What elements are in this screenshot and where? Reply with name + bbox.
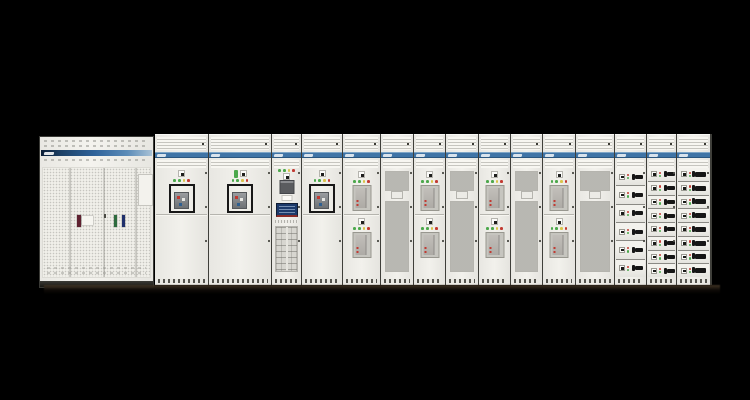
louver-vent <box>345 137 378 150</box>
drawer-meter <box>619 265 625 271</box>
bottom-vent <box>514 279 539 283</box>
drawer-meter <box>619 247 625 253</box>
terminal-strip <box>275 220 298 223</box>
indicator-led <box>435 180 438 183</box>
brand-banner <box>272 152 301 158</box>
photo-stage <box>0 0 750 400</box>
louver-vent <box>578 137 612 150</box>
brand-banner <box>155 152 208 158</box>
indicator-row <box>273 173 300 180</box>
withdrawable-drawer <box>616 241 645 259</box>
indicator-led <box>551 227 554 230</box>
drawer-led <box>659 175 661 177</box>
withdrawable-drawer <box>678 264 709 277</box>
drawer-led <box>627 211 629 213</box>
indicator-led <box>236 179 239 182</box>
white-label <box>82 216 93 225</box>
left-distribution-cabinet <box>40 137 153 287</box>
section-mesh-2 <box>446 134 478 285</box>
drawer-led <box>659 189 661 191</box>
bottom-vent <box>650 279 673 283</box>
indicator-row <box>544 171 574 178</box>
louver-vent <box>304 160 340 168</box>
drawer-led-column <box>659 227 661 232</box>
section-acb-1 <box>155 134 208 285</box>
section-mesh-3 <box>511 134 542 285</box>
drawer-handle <box>635 193 643 197</box>
indicator-led <box>278 169 281 172</box>
louver-vent <box>274 160 299 168</box>
mccb-breaker <box>352 232 371 258</box>
drawer-led-column <box>659 213 661 218</box>
drawer-meter <box>681 254 687 260</box>
mccb-breaker <box>550 232 569 258</box>
screw-dot <box>569 143 571 145</box>
louver-vent <box>448 137 476 150</box>
brand-banner <box>677 152 710 158</box>
section-content <box>512 168 541 277</box>
indicator-led <box>363 227 366 230</box>
mccb-breaker <box>420 185 439 211</box>
indicator-led <box>358 227 361 230</box>
drawer-led <box>689 172 691 174</box>
indicator-led-row <box>344 180 379 183</box>
section-content <box>577 168 613 277</box>
drawer-led <box>689 244 691 246</box>
indicator-led <box>323 179 326 182</box>
indicator-led-row <box>344 227 379 230</box>
indicator-led <box>565 227 568 230</box>
louver-vent <box>513 160 540 168</box>
brand-banner <box>343 152 380 158</box>
side-panel-frame <box>138 174 153 206</box>
hinge-screws <box>410 171 412 273</box>
hinge-screws <box>707 171 709 273</box>
mccb-breaker <box>420 232 439 258</box>
drawer-led <box>689 185 691 187</box>
indicator-led <box>496 227 499 230</box>
indicator-led-row <box>210 179 270 182</box>
louver-vent <box>513 137 540 150</box>
indicator-led <box>232 179 235 182</box>
drawer-handle <box>635 211 643 215</box>
drawer-handle <box>695 213 706 218</box>
drawer-led <box>689 254 691 256</box>
brand-logo <box>416 154 426 157</box>
drawer-meter <box>681 185 687 191</box>
mccb-breaker <box>485 232 504 258</box>
withdrawable-drawer <box>648 264 675 277</box>
meter-indicator <box>240 170 247 177</box>
indicator-led <box>173 179 176 182</box>
drawer-handle <box>635 266 643 270</box>
indicator-led <box>178 179 181 182</box>
screw-dot <box>336 143 338 145</box>
brand-banner <box>543 152 575 158</box>
drawer-led-column <box>659 240 661 245</box>
drawer-led <box>659 172 661 174</box>
drawer-led <box>689 216 691 218</box>
drawer-handle <box>695 227 706 232</box>
screw-dot <box>536 143 538 145</box>
bottom-vent <box>346 279 377 283</box>
hinge-screws <box>539 171 541 273</box>
air-circuit-breaker <box>227 184 253 213</box>
device-label <box>281 195 292 201</box>
compartment-divider <box>480 214 509 215</box>
drawer-led <box>689 202 691 204</box>
section-acb-3 <box>302 134 342 285</box>
drawer-led-column <box>689 199 691 204</box>
brand-logo <box>545 154 555 157</box>
brand-banner <box>576 152 614 158</box>
drawer-led <box>659 271 661 273</box>
indicator-led-row <box>480 227 509 230</box>
section-mccb-1 <box>343 134 380 285</box>
hinge-screws <box>298 171 300 273</box>
bottom-vent <box>618 279 643 283</box>
indicator-led <box>435 227 438 230</box>
brand-logo <box>304 154 314 157</box>
drawer-led <box>659 230 661 232</box>
drawer-led <box>659 216 661 218</box>
protection-relay <box>280 181 293 193</box>
drawer-meter <box>619 229 625 235</box>
indicator-row <box>344 218 379 225</box>
drawer-meter <box>651 226 657 232</box>
section-content <box>480 168 509 277</box>
section-drawers-2 <box>647 134 676 285</box>
brand-banner <box>615 152 646 158</box>
drawer-led-column <box>659 199 661 204</box>
withdrawable-drawer <box>648 237 675 251</box>
indicator-led <box>283 169 286 172</box>
louver-vent <box>679 160 708 168</box>
screw-dot <box>640 143 642 145</box>
louver-vent <box>545 160 573 168</box>
drawer-led-column <box>659 268 661 273</box>
withdrawable-drawer <box>648 209 675 223</box>
indicator-row <box>544 218 574 225</box>
indicator-led <box>358 180 361 183</box>
compartment-divider <box>544 214 574 215</box>
mesh-vent-panel <box>385 201 409 272</box>
brand-logo <box>448 154 458 157</box>
drawer-led <box>689 271 691 273</box>
brand-banner <box>414 152 445 158</box>
panel-label <box>391 191 403 199</box>
brand-logo <box>383 154 393 157</box>
bottom-vent <box>417 279 442 283</box>
screw-dot <box>439 143 441 145</box>
drawer-led-column <box>689 268 691 273</box>
drawer-handle <box>695 186 706 191</box>
door-handle <box>104 214 106 218</box>
panel-label <box>589 191 601 199</box>
mesh-vent-panel <box>385 171 409 191</box>
withdrawable-drawer <box>616 223 645 241</box>
section-mccb-2 <box>414 134 445 285</box>
indicator-led <box>426 180 429 183</box>
indicator-row <box>480 218 509 225</box>
screw-dot <box>202 143 204 145</box>
drawer-meter <box>651 171 657 177</box>
section-metering-hmi <box>272 134 301 285</box>
louver-vent <box>649 160 674 168</box>
drawer-led <box>659 240 661 242</box>
drawer-led-column <box>627 247 629 252</box>
indicator-led <box>367 180 370 183</box>
drawer-led <box>627 232 629 234</box>
indicator-led-row <box>156 179 207 182</box>
drawer-led <box>689 240 691 242</box>
screw-dot <box>265 143 267 145</box>
meter-indicator <box>556 218 563 225</box>
brand-logo <box>578 154 588 157</box>
indicator-led <box>421 180 424 183</box>
mesh-vent-panel <box>515 171 538 191</box>
indicator-led <box>367 227 370 230</box>
drawer-led <box>627 229 629 231</box>
drawer-led <box>689 227 691 229</box>
indicator-led-row <box>480 180 509 183</box>
indicator-led <box>246 179 249 182</box>
indicator-led <box>353 180 356 183</box>
louver-vent <box>304 137 340 150</box>
indicator-led <box>560 227 563 230</box>
drawer-led <box>627 269 629 271</box>
withdrawable-drawer <box>678 223 709 237</box>
withdrawable-drawer <box>678 251 709 265</box>
mesh-vent-panel <box>450 201 474 272</box>
louver-vent <box>481 160 508 168</box>
drawer-meter <box>651 240 657 246</box>
drawer-led <box>659 244 661 246</box>
louver-vent <box>545 137 573 150</box>
section-content <box>678 168 709 277</box>
indicator-led <box>491 227 494 230</box>
bottom-vent <box>449 279 475 283</box>
indicator-led <box>486 180 489 183</box>
withdrawable-drawer <box>616 186 645 204</box>
indicator-led <box>421 227 424 230</box>
drawer-led <box>659 199 661 201</box>
drawer-led-column <box>659 254 661 259</box>
indicator-led <box>288 169 291 172</box>
drawer-meter <box>619 192 625 198</box>
drawer-handle <box>695 241 706 246</box>
section-content <box>156 168 207 277</box>
vent-dash-row <box>44 140 149 142</box>
indicator-led-row <box>544 227 574 230</box>
drawer-led <box>689 213 691 215</box>
brand-logo <box>274 154 284 157</box>
drawer-meter <box>651 185 657 191</box>
drawer-stack <box>678 168 709 277</box>
section-acb-2 <box>209 134 271 285</box>
air-circuit-breaker <box>309 184 335 213</box>
meter-indicator <box>319 170 326 177</box>
indicator-row <box>156 170 207 177</box>
compartment-divider <box>344 214 379 215</box>
drawer-led-column <box>689 227 691 232</box>
indicator-led <box>555 227 558 230</box>
indicator-row <box>210 170 270 178</box>
vent-dash-row <box>44 145 149 147</box>
bottom-vent <box>579 279 611 283</box>
bottom-vent <box>158 279 205 283</box>
meter-indicator <box>491 218 498 225</box>
drawer-meter <box>651 254 657 260</box>
section-content <box>303 168 341 277</box>
bottom-vent <box>546 279 572 283</box>
withdrawable-drawer <box>648 196 675 210</box>
indicator-led-row <box>544 180 574 183</box>
indicator-row <box>480 171 509 178</box>
drawer-led-column <box>689 240 691 245</box>
brand-banner <box>479 152 510 158</box>
green-label <box>114 215 117 227</box>
drawer-led <box>627 174 629 176</box>
brand-logo <box>157 154 167 157</box>
bottom-vent <box>680 279 707 283</box>
hinge-screws <box>205 171 207 273</box>
indicator-row <box>415 171 444 178</box>
drawer-handle <box>635 248 643 252</box>
drawer-stack <box>616 168 645 277</box>
drawer-led <box>689 189 691 191</box>
bottom-vent <box>275 279 298 283</box>
switchgear-lineup <box>155 134 712 285</box>
indicator-led <box>318 179 321 182</box>
drawer-led-column <box>627 229 629 234</box>
indicator-led-row <box>415 180 444 183</box>
section-mccb-4 <box>543 134 575 285</box>
drawer-meter <box>681 226 687 232</box>
withdrawable-drawer <box>616 205 645 223</box>
hinge-screws <box>673 171 675 273</box>
section-mesh-1 <box>381 134 413 285</box>
door-seam <box>69 168 70 277</box>
section-content <box>544 168 574 277</box>
meter-indicator <box>283 173 290 180</box>
brand-banner <box>511 152 542 158</box>
drawer-led-column <box>689 254 691 259</box>
drawer-meter <box>681 268 687 274</box>
screw-dot <box>670 143 672 145</box>
drawer-led-column <box>689 185 691 190</box>
indicator-led <box>183 179 186 182</box>
screw-dot <box>608 143 610 145</box>
indicator-led <box>314 179 317 182</box>
section-mesh-4 <box>576 134 614 285</box>
brand-banner <box>209 152 271 158</box>
louver-vent <box>617 137 644 150</box>
drawer-led-column <box>689 172 691 177</box>
drawer-led-column <box>659 172 661 177</box>
hinge-screws <box>442 171 444 273</box>
brand-banner <box>647 152 676 158</box>
screw-dot <box>704 143 706 145</box>
louver-vent <box>679 137 708 150</box>
drawer-led <box>627 177 629 179</box>
brand-logo <box>649 154 659 157</box>
indicator-led-row <box>273 169 300 172</box>
louver-vent <box>274 137 299 150</box>
drawer-led <box>627 247 629 249</box>
brand-logo <box>345 154 355 157</box>
bottom-vent <box>212 279 268 283</box>
screw-dot <box>472 143 474 145</box>
brand-logo <box>679 154 689 157</box>
indicator-led <box>363 180 366 183</box>
louver-vent <box>383 160 411 168</box>
indicator-row <box>415 218 444 225</box>
floor-shadow <box>44 285 720 294</box>
mesh-vent-panel <box>450 171 474 191</box>
drawer-meter <box>619 174 625 180</box>
indicator-led <box>187 179 190 182</box>
panel-label <box>456 191 468 199</box>
meter-indicator <box>556 171 563 178</box>
indicator-led <box>565 180 568 183</box>
section-content <box>273 168 300 277</box>
louver-vent <box>481 137 508 150</box>
withdrawable-drawer <box>678 196 709 210</box>
drawer-led <box>689 175 691 177</box>
louver-vent <box>416 137 443 150</box>
drawer-led <box>689 257 691 259</box>
mesh-vent-panel <box>515 201 538 272</box>
louver-vent <box>157 137 206 150</box>
louver-vent <box>211 160 269 168</box>
drawer-led <box>689 268 691 270</box>
withdrawable-drawer <box>648 251 675 265</box>
indicator-row <box>303 170 341 177</box>
hmi-touchscreen <box>276 203 298 217</box>
brand-banner <box>41 150 152 156</box>
bottom-vent <box>482 279 507 283</box>
drawer-meter <box>681 171 687 177</box>
panel-label <box>521 191 533 199</box>
drawer-meter <box>651 199 657 205</box>
indicator-led <box>486 227 489 230</box>
compartment-divider <box>303 214 341 215</box>
meter-indicator <box>426 218 433 225</box>
louver-vent <box>617 160 644 168</box>
hinge-screws <box>475 171 477 273</box>
indicator-led <box>496 180 499 183</box>
pilot-light <box>234 170 238 178</box>
meter-indicator <box>426 171 433 178</box>
drawer-handle <box>695 172 706 177</box>
drawer-led-column <box>627 266 629 271</box>
navy-label <box>122 215 125 227</box>
air-circuit-breaker <box>169 184 195 213</box>
drawer-handle <box>635 175 643 179</box>
drawer-meter <box>619 210 625 216</box>
drawer-led-column <box>689 213 691 218</box>
vent-dash-row <box>47 272 146 274</box>
withdrawable-drawer <box>616 260 645 277</box>
hinge-screws <box>572 171 574 273</box>
hinge-screws <box>643 171 645 273</box>
indicator-led <box>551 180 554 183</box>
brand-banner <box>381 152 413 158</box>
section-content <box>616 168 645 277</box>
brand-logo <box>481 154 491 157</box>
mccb-breaker <box>352 185 371 211</box>
